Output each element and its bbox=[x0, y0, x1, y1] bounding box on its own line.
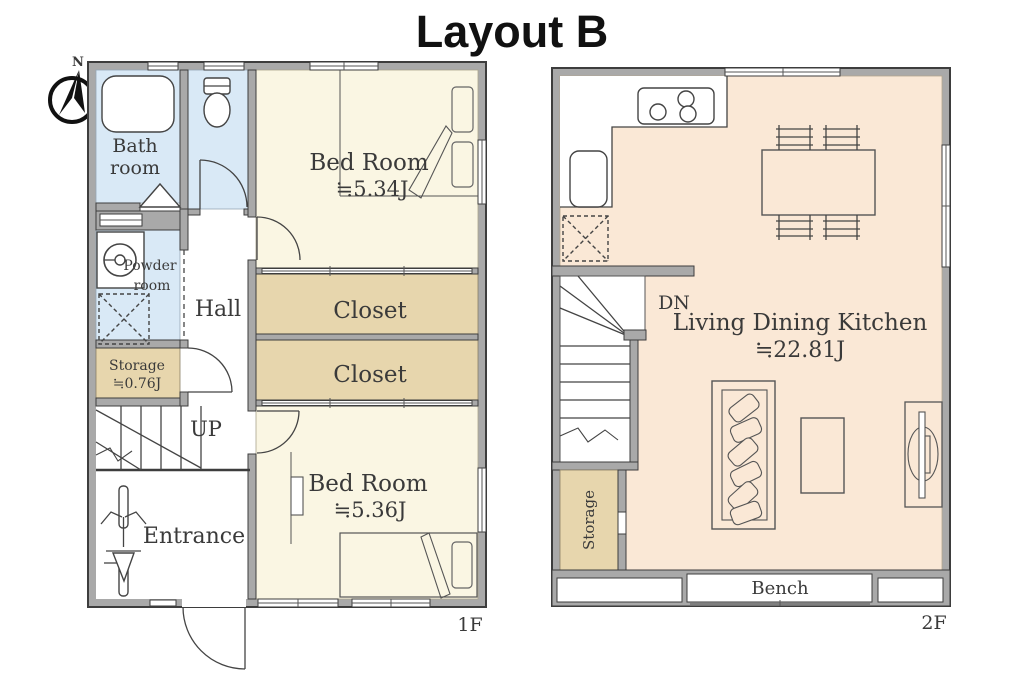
storage-1f-label: Storage bbox=[109, 358, 165, 374]
balcony-right bbox=[878, 578, 943, 602]
sink-icon bbox=[570, 151, 607, 207]
balcony-left bbox=[557, 578, 682, 602]
floor1-plan: Bath room Powder room Hall Storage ≒0.76… bbox=[88, 62, 486, 669]
floor2-plan: DN Living Dining Kitchen ≒22.81J Storage… bbox=[552, 68, 950, 634]
wall bbox=[248, 454, 256, 599]
stairs-up-label: UP bbox=[190, 417, 222, 441]
bathtub-icon bbox=[102, 76, 174, 132]
bathroom-label: room bbox=[110, 157, 160, 179]
floor1-label: 1F bbox=[457, 614, 482, 636]
wall bbox=[256, 334, 478, 340]
wall bbox=[180, 340, 188, 348]
wall bbox=[624, 330, 646, 340]
closet-south-label: Closet bbox=[333, 362, 407, 388]
wall bbox=[96, 203, 140, 211]
compass-north-label: N bbox=[72, 55, 84, 70]
wall bbox=[180, 70, 188, 209]
ldk-area: ≒22.81J bbox=[755, 338, 845, 363]
wall bbox=[552, 462, 638, 470]
storage-2f-door bbox=[618, 512, 626, 534]
hall-label: Hall bbox=[195, 297, 241, 322]
wall bbox=[180, 392, 188, 406]
wall bbox=[552, 266, 694, 276]
bedroom-south-area: ≒5.36J bbox=[334, 498, 407, 522]
closet-north-label: Closet bbox=[333, 298, 407, 324]
bench-label: Bench bbox=[751, 578, 809, 599]
wall bbox=[618, 470, 626, 512]
wall bbox=[618, 534, 626, 570]
wall bbox=[248, 70, 256, 217]
wall bbox=[180, 209, 188, 250]
floorplan-page: Layout B N bbox=[0, 0, 1024, 683]
bathroom-label: Bath bbox=[112, 135, 157, 157]
wall bbox=[96, 398, 180, 406]
bedroom-south-label: Bed Room bbox=[308, 471, 428, 497]
entrance-label: Entrance bbox=[143, 524, 245, 549]
ldk-label: Living Dining Kitchen bbox=[673, 310, 928, 336]
wall bbox=[248, 260, 256, 411]
wall bbox=[630, 340, 638, 462]
floorplan-canvas: Layout B N bbox=[0, 0, 1024, 683]
entrance-door-arc bbox=[183, 607, 245, 669]
floor2-label: 2F bbox=[921, 612, 946, 634]
storage-2f-label: Storage bbox=[580, 490, 598, 550]
toilet-icon bbox=[204, 78, 230, 127]
page-title: Layout B bbox=[416, 6, 609, 57]
powder-room-label: Powder bbox=[123, 258, 177, 274]
storage-1f-area: ≒0.76J bbox=[113, 376, 162, 392]
wall bbox=[188, 209, 200, 215]
bedroom-north-area: ≒5.34J bbox=[336, 177, 409, 201]
bedroom-north-label: Bed Room bbox=[309, 150, 429, 176]
stove-icon bbox=[638, 88, 714, 124]
powder-room-label: room bbox=[134, 278, 171, 294]
entrance-doorway bbox=[182, 599, 246, 607]
